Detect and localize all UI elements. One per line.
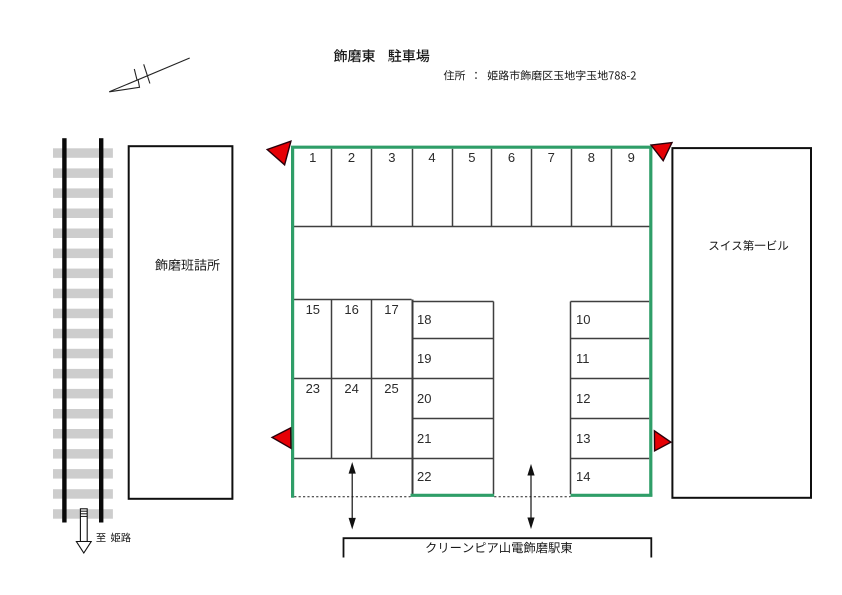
svg-text:23: 23 — [306, 381, 320, 396]
svg-text:19: 19 — [417, 351, 431, 366]
svg-text:9: 9 — [628, 150, 635, 165]
svg-text:25: 25 — [384, 381, 398, 396]
svg-text:4: 4 — [428, 150, 435, 165]
svg-text:20: 20 — [417, 391, 431, 406]
svg-text:15: 15 — [306, 302, 320, 317]
svg-text:5: 5 — [468, 150, 475, 165]
svg-text:2: 2 — [348, 150, 355, 165]
svg-text:18: 18 — [417, 312, 431, 327]
svg-text:16: 16 — [344, 302, 358, 317]
svg-text:7: 7 — [548, 150, 555, 165]
svg-text:13: 13 — [576, 431, 590, 446]
svg-text:24: 24 — [344, 381, 358, 396]
svg-text:6: 6 — [508, 150, 515, 165]
svg-text:3: 3 — [388, 150, 395, 165]
svg-text:21: 21 — [417, 431, 431, 446]
svg-text:14: 14 — [576, 469, 590, 484]
svg-text:22: 22 — [417, 469, 431, 484]
svg-text:1: 1 — [309, 150, 316, 165]
svg-text:11: 11 — [576, 351, 590, 366]
svg-text:17: 17 — [384, 302, 398, 317]
svg-text:12: 12 — [576, 391, 590, 406]
svg-text:8: 8 — [588, 150, 595, 165]
svg-text:10: 10 — [576, 312, 590, 327]
